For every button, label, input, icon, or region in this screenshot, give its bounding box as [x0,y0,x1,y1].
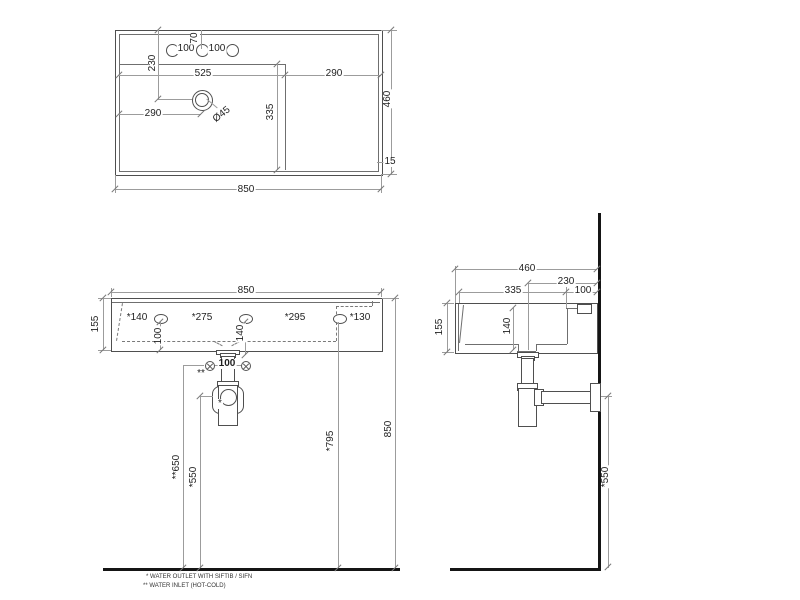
dimension-line [513,308,514,350]
drawing-line [567,308,568,344]
dim-overall-depth: 460 [518,264,537,274]
dim-hole-gap-right: 100 [208,44,227,54]
dim-drain-from-top: 230 [148,54,158,73]
dim-hole4: *130 [349,313,372,323]
inlet-mark: ** [196,369,206,379]
dimension-line [201,30,202,49]
basin-divider [119,64,285,65]
hole-marker [333,314,347,324]
wall-flange [590,383,601,412]
dim-hole-height: *795 [326,430,336,453]
faucet-hole [196,44,209,57]
drawing-line [536,344,567,345]
dimension-line [382,298,399,299]
dim-inlet-height: **650 [172,454,182,480]
floor-line [450,568,601,571]
dim-drain-from-left: 290 [144,109,163,119]
dim-drain-from-wall: 230 [557,277,576,287]
dim-outlet-height: *550 [601,466,611,489]
footnote-outlet: * WATER OUTLET WITH SIFTIB / SIFN [146,573,252,582]
dimension-line [115,175,116,193]
hidden-edge-line [372,301,373,306]
dimension-line [200,396,201,569]
dim-overall-width: 850 [237,185,256,195]
water-inlet-icon [241,361,251,371]
dim-hole-offset: 70 [190,31,200,44]
dimension-line [183,365,184,569]
dimension-line [447,303,448,352]
dim-hole2: *275 [191,313,214,323]
footnote-inlet: ** WATER INLET (HOT-COLD) [143,582,226,591]
hidden-edge-line [336,306,372,307]
technical-drawing: 100 70 100 230 525 290 290 Ø45 335 460 1… [0,0,800,600]
dim-deck-width: 290 [325,69,344,79]
floor-line [103,568,400,571]
dim-overall-width: 850 [237,286,256,296]
dimension-line [103,298,104,350]
dimension-line [455,266,456,303]
dim-basin-inner: 335 [504,286,523,296]
dim-tick [604,563,611,570]
dim-inner-depth: 140 [503,317,513,336]
dim-inlet-gap: 100 [218,359,237,369]
rim-line [112,302,380,303]
dimension-line [200,396,213,397]
wall-pipe [541,391,593,404]
faucet-hole [226,44,239,57]
dim-drain-drop: 140 [236,324,246,343]
dimension-line [395,298,396,569]
dim-hole1: *140 [126,313,149,323]
dimension-line [381,175,382,193]
dimension-line [183,365,204,366]
dim-hole3: *295 [284,313,307,323]
dim-height: 155 [435,318,445,337]
basin-divider [285,64,286,170]
dimension-line [277,64,278,170]
faucet-hole-section [577,304,592,314]
dimension-line [158,99,192,100]
drawing-line [458,304,459,351]
dim-mount-height: 850 [384,420,394,439]
dimension-line [528,283,529,350]
dim-basin-length: 335 [266,103,276,122]
dim-basin-width: 525 [194,69,213,79]
drawing-line [465,344,518,345]
drain-tailpipe [521,358,534,386]
dim-outlet-height: *550 [189,466,199,489]
dim-hole-drop: 100 [154,327,164,346]
dimension-line [158,30,159,99]
dim-deck-width: 100 [574,286,593,296]
dim-rim: 15 [383,157,396,167]
dim-overall-depth: 460 [383,90,393,109]
dimension-line [459,292,460,303]
dim-height: 155 [91,315,101,334]
outlet-mark: * [217,399,223,409]
water-inlet-icon [205,361,215,371]
dimension-line [338,322,339,569]
dim-hole-gap-left: 100 [177,44,196,54]
dim-tick [241,351,248,358]
